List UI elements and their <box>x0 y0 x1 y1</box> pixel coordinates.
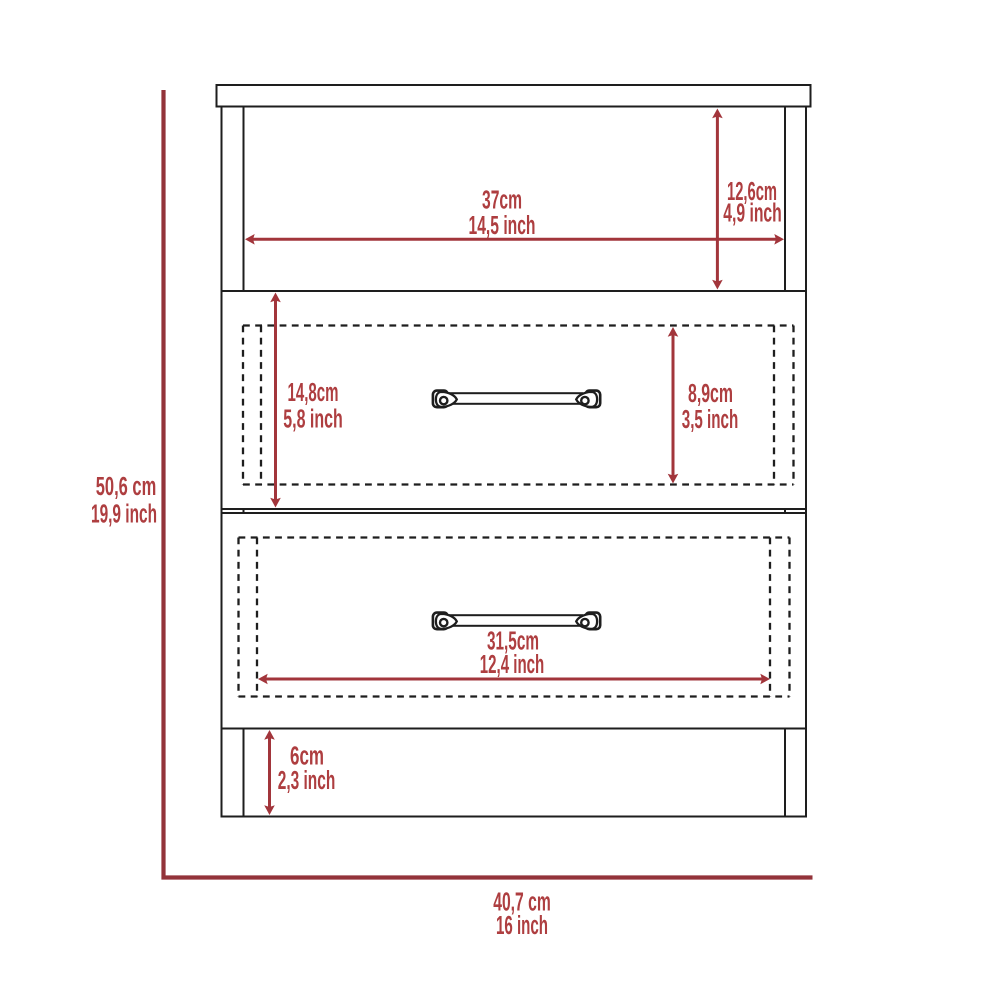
svg-text:12,4 inch: 12,4 inch <box>480 651 545 679</box>
svg-text:2,3 inch: 2,3 inch <box>278 767 336 795</box>
svg-text:16 inch: 16 inch <box>496 912 548 940</box>
svg-text:8,9cm: 8,9cm <box>688 380 733 408</box>
svg-text:50,6 cm: 50,6 cm <box>96 473 157 501</box>
svg-text:14,8cm: 14,8cm <box>288 379 339 407</box>
svg-text:3,5 inch: 3,5 inch <box>682 406 739 434</box>
svg-text:5,8 inch: 5,8 inch <box>283 406 343 434</box>
svg-text:37cm: 37cm <box>482 187 522 215</box>
svg-text:14,5 inch: 14,5 inch <box>469 212 536 240</box>
svg-text:4,9 inch: 4,9 inch <box>723 200 782 228</box>
svg-text:19,9 inch: 19,9 inch <box>91 501 157 529</box>
